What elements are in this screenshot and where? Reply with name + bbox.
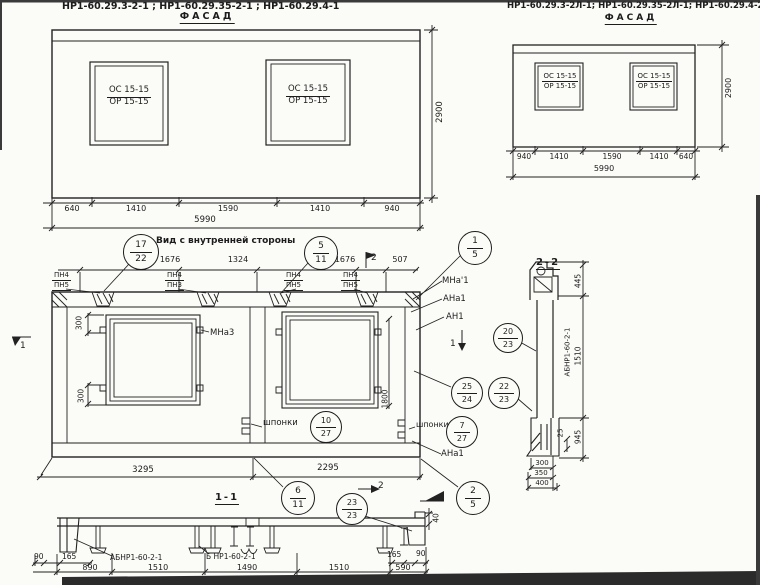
callout-22-23: 22 23 <box>488 377 520 409</box>
window-mark-right-2: ОС 15-15 ОР 15-15 <box>633 72 675 90</box>
callout-top: 5 <box>313 242 329 254</box>
pn-mark-4: ПН4 ПН5 <box>341 271 360 291</box>
window-mark-or: ОР 15-15 <box>544 82 576 90</box>
dim-height-2900-right: 2900 <box>725 78 733 98</box>
dim-1800: 1800 <box>381 389 389 408</box>
section-flag-1-right: 1 <box>450 340 456 349</box>
pn-bottom: ПН3 <box>165 281 184 291</box>
callout-bottom: 23 <box>499 394 509 404</box>
dim-1410: 1410 <box>649 153 668 161</box>
callout-bottom: 11 <box>292 499 303 510</box>
dim-165-right: 165 <box>387 551 401 559</box>
dim-1324: 1324 <box>228 256 248 264</box>
dim-90-left: 90 <box>34 553 44 561</box>
window-mark-left-2: ОС 15-15 ОР 15-15 <box>283 85 333 107</box>
pn-top: ПН4 <box>52 271 71 281</box>
pn-mark-1: ПН4 ПН5 <box>52 271 71 291</box>
callout-top: 23 <box>342 499 362 510</box>
dim-25: 25 <box>558 429 565 438</box>
callout-17-22: 17 22 <box>123 234 159 270</box>
pn-top: ПН4 <box>341 271 360 281</box>
dim-945: 945 <box>574 430 582 444</box>
callout-5-11: 5 11 <box>304 236 338 270</box>
callout-top: 25 <box>457 383 477 394</box>
label-abnr-2-2: АБНР1-60-2-1 <box>565 328 572 377</box>
callout-top: 7 <box>454 422 469 433</box>
dim-1510: 1510 <box>148 564 168 572</box>
callout-top: 10 <box>316 417 336 428</box>
facade-right-subtitle: ФАСАД <box>605 14 657 25</box>
callout-bottom: 22 <box>135 253 146 264</box>
dim-1490: 1490 <box>237 564 257 572</box>
dim-890: 890 <box>82 564 97 572</box>
label-ana1-right: АНа1 <box>443 295 466 304</box>
label-an1: АН1 <box>446 313 464 322</box>
dim-total-5990-right: 5990 <box>594 165 614 173</box>
dim-1410: 1410 <box>126 205 146 213</box>
callout-20-23: 20 23 <box>493 323 523 353</box>
callout-23-23: 23 23 <box>336 493 368 525</box>
dim-40: 40 <box>432 513 440 523</box>
inner-view-linework <box>37 267 423 480</box>
label-bnr-1-1: Б НР1-60-2-1 <box>206 553 256 561</box>
callout-bottom: 5 <box>472 249 478 260</box>
dim-1410: 1410 <box>549 153 568 161</box>
callout-bottom: 5 <box>470 499 476 510</box>
pn-top: ПН4 <box>165 271 184 281</box>
window-mark-os: ОС 15-15 <box>636 72 673 82</box>
dim-640: 640 <box>64 205 79 213</box>
dim-400-2-2: 400 <box>535 480 548 487</box>
window-mark-os: ОС 15-15 <box>286 85 330 97</box>
pn-mark-2: ПН4 ПН3 <box>165 271 184 291</box>
dim-507: 507 <box>392 256 407 264</box>
label-ana1-bottom: АНа1 <box>441 450 464 459</box>
dim-640: 640 <box>679 153 693 161</box>
facade-right-title: НР1-60.29.3-2Л-1; НР1-60.29.35-2Л-1; НР1… <box>507 2 760 11</box>
label-abnr-1-1: АБНР1-60-2-1 <box>110 554 162 562</box>
window-mark-os: ОС 15-15 <box>542 72 579 82</box>
dim-300-bottom: 300 <box>77 389 85 403</box>
callout-1-5: 1 5 <box>458 231 492 265</box>
callout-bottom: 27 <box>457 433 467 443</box>
callout-top: 6 <box>290 487 306 499</box>
section-2-2-title: 2-2 <box>536 258 560 270</box>
callout-top: 17 <box>130 241 151 253</box>
section-flag-1-left: 1 <box>20 342 26 351</box>
window-mark-right-1: ОС 15-15 ОР 15-15 <box>539 72 581 90</box>
callout-bottom: 24 <box>462 394 472 404</box>
window-mark-left-1: ОС 15-15 ОР 15-15 <box>104 86 154 108</box>
label-shponki-left: шпонки <box>263 419 298 428</box>
dim-165-left: 165 <box>62 553 76 561</box>
dim-1410: 1410 <box>310 205 330 213</box>
dim-3295: 3295 <box>132 466 154 475</box>
callout-bottom: 23 <box>347 510 357 520</box>
window-mark-os: ОС 15-15 <box>107 86 151 98</box>
dim-1590: 1590 <box>602 153 621 161</box>
inner-view-title: Вид с внутренней стороны <box>156 237 295 246</box>
callout-top: 22 <box>494 383 514 394</box>
blueprint-sheet: НР1-60.29.3-2-1 ; НР1-60.29.35-2-1 ; НР1… <box>0 0 760 585</box>
callout-6-11: 6 11 <box>281 481 315 515</box>
pn-mark-3: ПН4 ПН5 <box>284 271 303 291</box>
dim-1676: 1676 <box>335 256 355 264</box>
window-mark-or: ОР 15-15 <box>638 82 670 90</box>
window-mark-or: ОР 15-15 <box>109 98 148 108</box>
dim-300-top: 300 <box>75 316 83 330</box>
section-1-1-title: 1-1 <box>215 493 239 505</box>
callout-top: 2 <box>465 487 481 499</box>
callout-top: 20 <box>498 328 518 339</box>
dim-1510-2-2: 1510 <box>574 346 582 365</box>
dim-300-2-2: 300 <box>535 460 548 467</box>
callout-25-24: 25 24 <box>451 377 483 409</box>
callout-top: 1 <box>467 237 483 249</box>
pn-top: ПН4 <box>284 271 303 281</box>
dim-1676: 1676 <box>160 256 180 264</box>
dim-total-5990-left: 5990 <box>194 216 216 225</box>
dim-1590: 1590 <box>218 205 238 213</box>
pn-bottom: ПН5 <box>341 281 360 291</box>
pn-bottom: ПН5 <box>52 281 71 291</box>
section-flag-2-bottom: 2 <box>378 482 384 491</box>
section-flag-2-top: 2 <box>371 254 377 263</box>
label-mna3: МНа3 <box>210 329 234 338</box>
dim-90-right: 90 <box>416 550 426 558</box>
dim-445: 445 <box>574 274 582 288</box>
dim-350-2-2: 350 <box>534 470 547 477</box>
dim-940: 940 <box>384 205 399 213</box>
callout-bottom: 27 <box>321 428 331 438</box>
window-mark-or: ОР 15-15 <box>288 97 327 107</box>
callout-bottom: 11 <box>315 254 326 265</box>
dim-1510: 1510 <box>329 564 349 572</box>
dim-590: 590 <box>395 564 410 572</box>
label-shponki-right: шпонки <box>416 421 449 429</box>
facade-left-linework <box>43 25 438 231</box>
dim-2295: 2295 <box>317 464 339 473</box>
callout-10-27: 10 27 <box>310 411 342 443</box>
dim-height-2900-left: 2900 <box>436 101 445 123</box>
facade-left-subtitle: ФАСАД <box>180 12 235 24</box>
callout-bottom: 23 <box>503 339 513 349</box>
label-mna1: МНа'1 <box>442 277 469 286</box>
callout-7-27: 7 27 <box>446 416 478 448</box>
dim-940: 940 <box>517 153 531 161</box>
section-2-2-linework <box>526 260 589 491</box>
pn-bottom: ПН5 <box>284 281 303 291</box>
callout-2-5: 2 5 <box>456 481 490 515</box>
